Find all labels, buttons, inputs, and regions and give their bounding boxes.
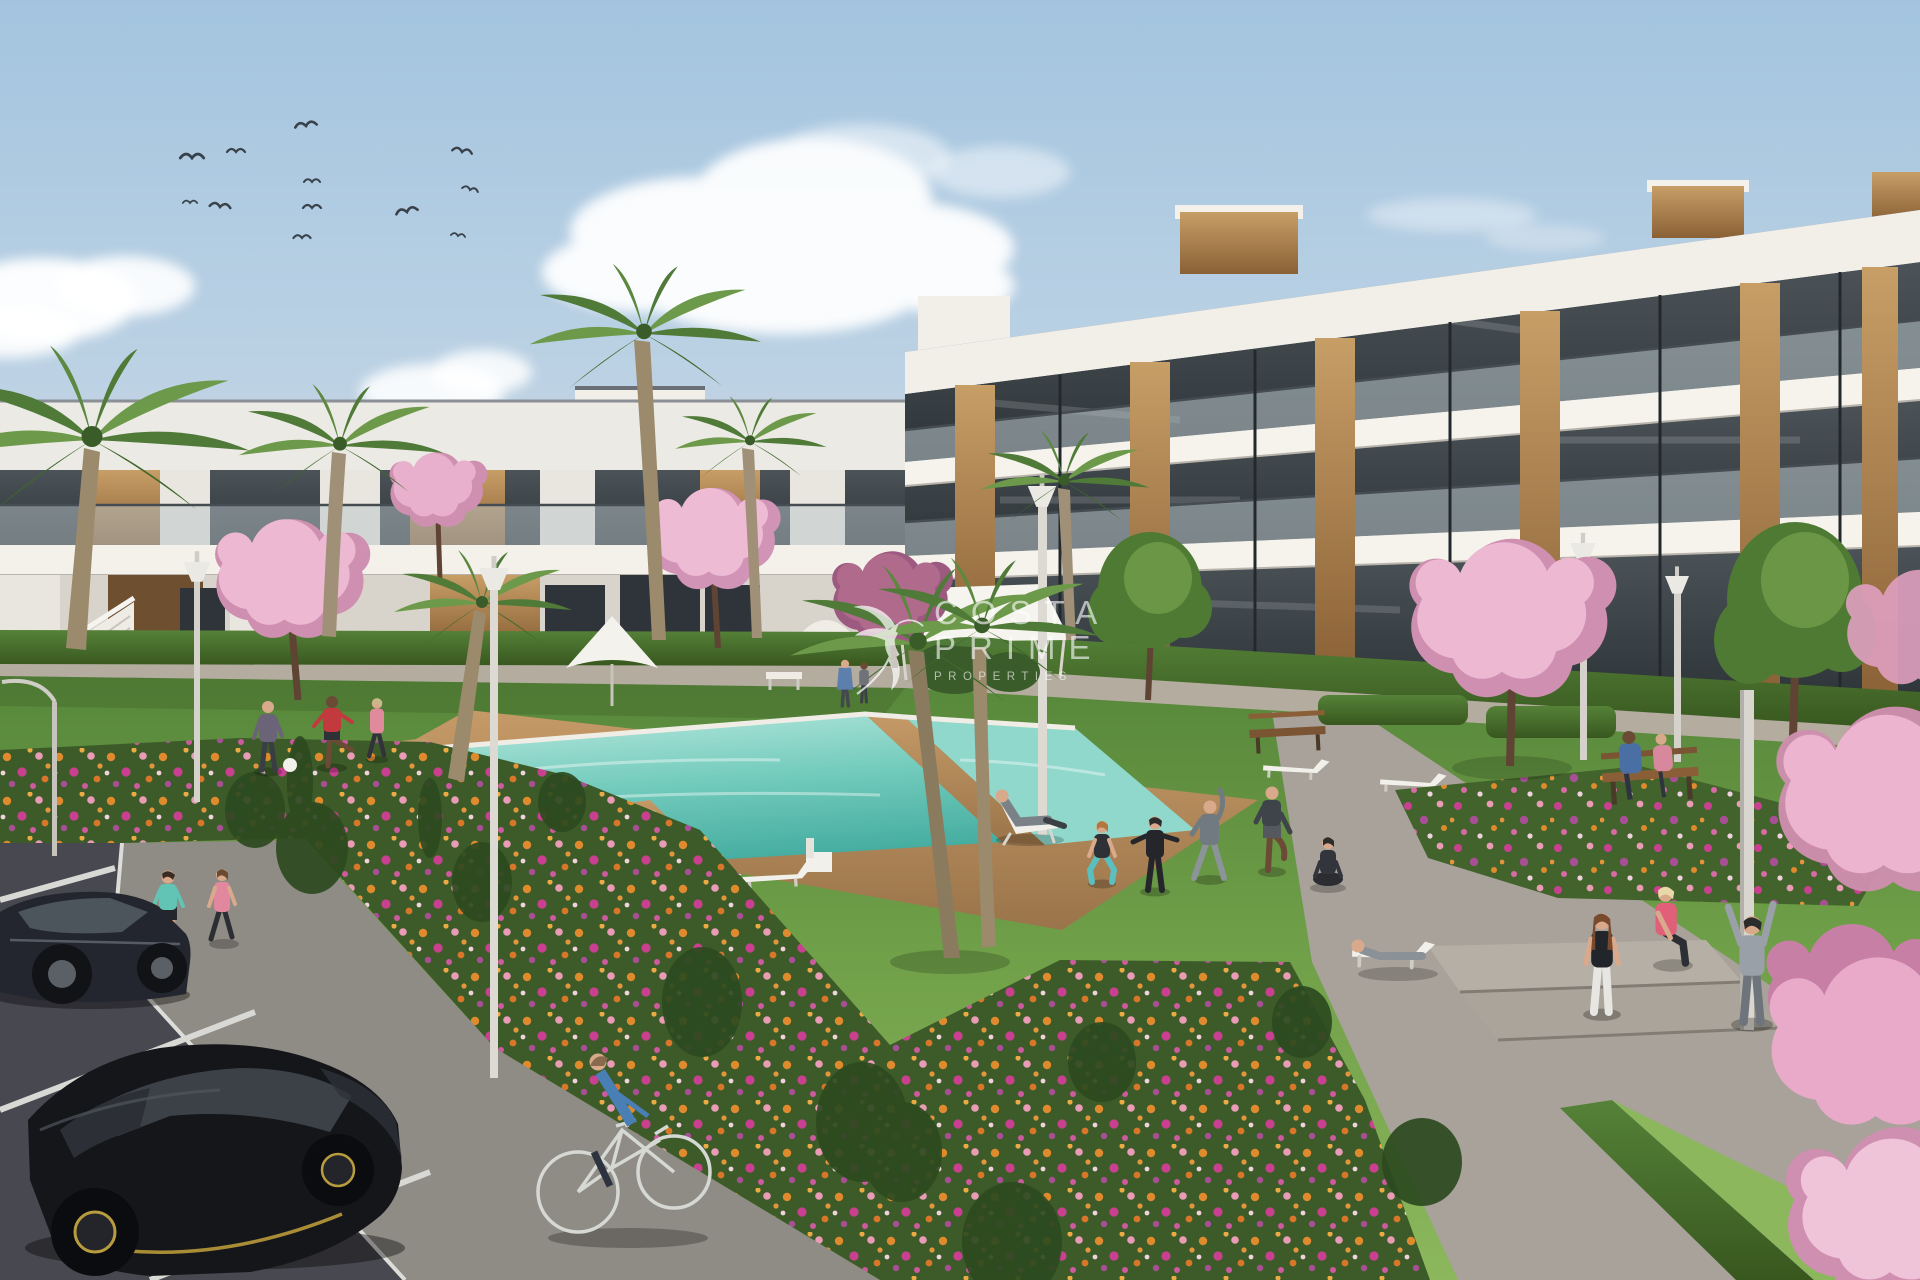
- rooftop-wood-box: [1180, 212, 1298, 274]
- parked-black-hatchback: [25, 1044, 405, 1276]
- scene-render: [0, 0, 1920, 1280]
- render-image: COSTA PRIME PROPERTIES: [0, 0, 1920, 1280]
- rooftop-wood-box: [1652, 186, 1744, 238]
- football: [283, 758, 297, 772]
